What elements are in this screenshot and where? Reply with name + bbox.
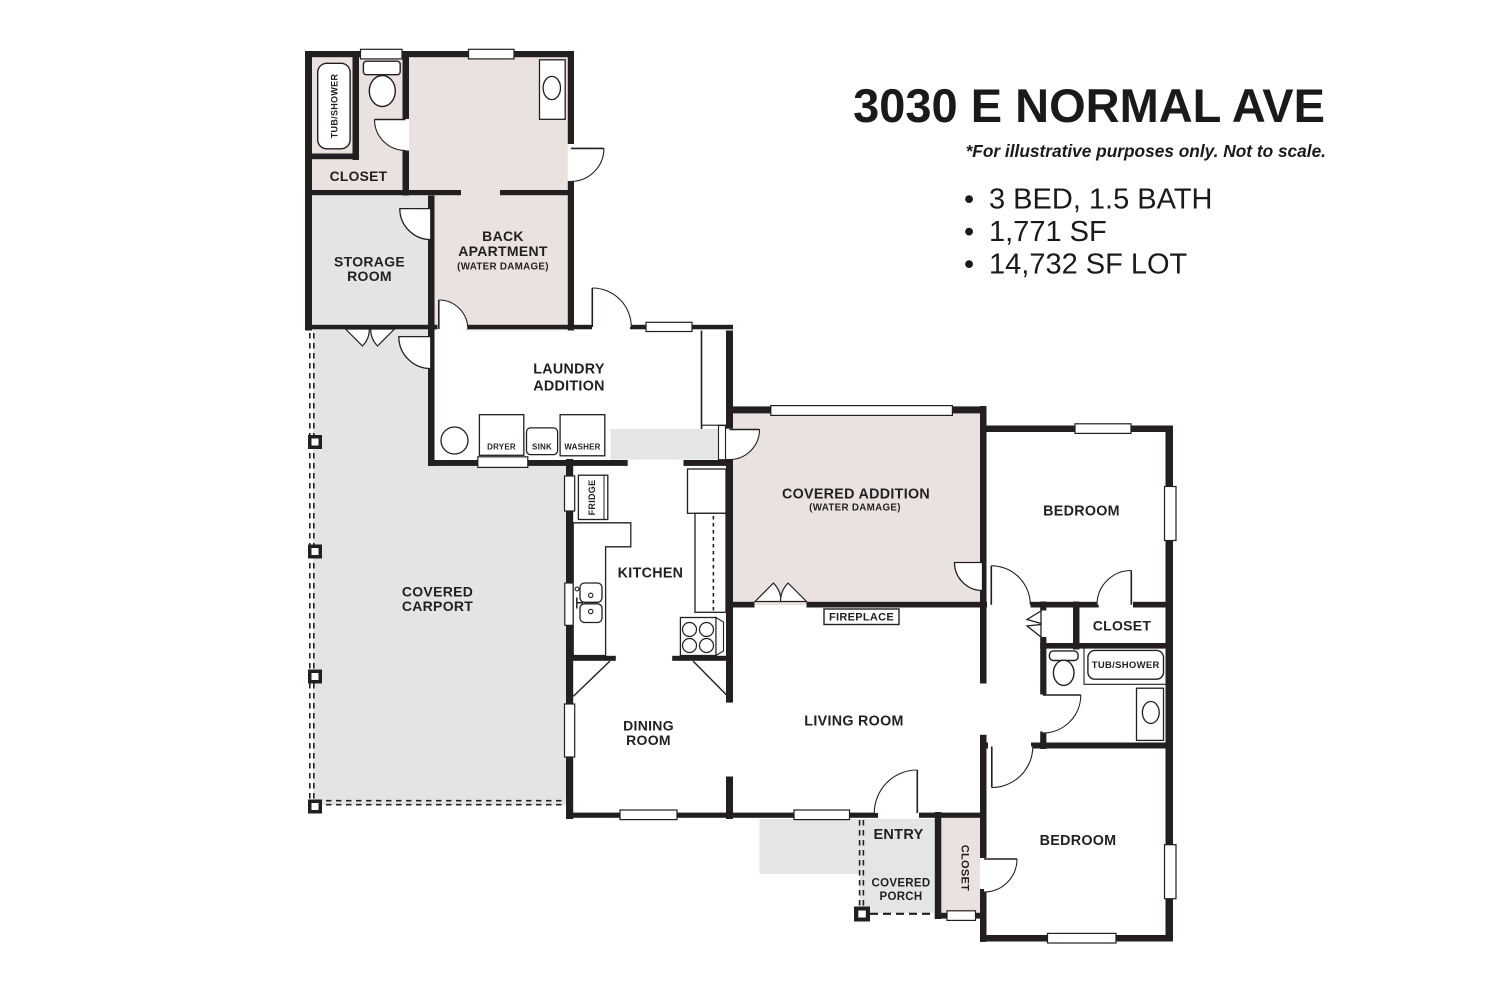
svg-text:•: • [964, 184, 974, 216]
svg-text:SINK: SINK [532, 443, 552, 452]
svg-text:CLOSET: CLOSET [959, 845, 971, 891]
svg-text:APARTMENT: APARTMENT [458, 243, 548, 259]
svg-text:•: • [964, 216, 974, 248]
svg-text:•: • [964, 249, 974, 281]
svg-text:1,771 SF: 1,771 SF [989, 216, 1107, 248]
svg-text:TUB/SHOWER: TUB/SHOWER [1092, 660, 1160, 671]
svg-text:(WATER DAMAGE): (WATER DAMAGE) [809, 503, 901, 514]
svg-text:LAUNDRY: LAUNDRY [533, 362, 605, 378]
svg-text:COVERED ADDITION: COVERED ADDITION [782, 487, 930, 503]
svg-text:ADDITION: ADDITION [533, 379, 605, 395]
svg-text:KITCHEN: KITCHEN [618, 566, 684, 582]
svg-text:BEDROOM: BEDROOM [1043, 503, 1120, 519]
svg-text:ROOM: ROOM [626, 732, 671, 748]
svg-text:14,732 SF LOT: 14,732 SF LOT [989, 249, 1188, 281]
svg-text:TUB/SHOWER: TUB/SHOWER [330, 74, 340, 139]
svg-text:CLOSET: CLOSET [1093, 618, 1152, 634]
svg-text:FRIDGE: FRIDGE [587, 480, 597, 516]
svg-text:*For illustrative purposes onl: *For illustrative purposes only. Not to … [966, 141, 1326, 161]
svg-text:COVERED: COVERED [872, 878, 931, 890]
svg-text:DRYER: DRYER [487, 443, 516, 452]
svg-text:CARPORT: CARPORT [402, 598, 473, 614]
svg-text:ROOM: ROOM [347, 268, 392, 284]
svg-text:CLOSET: CLOSET [330, 169, 388, 184]
svg-text:LIVING ROOM: LIVING ROOM [804, 714, 903, 730]
svg-text:3030 E NORMAL AVE: 3030 E NORMAL AVE [853, 79, 1325, 132]
svg-text:3 BED, 1.5 BATH: 3 BED, 1.5 BATH [989, 184, 1213, 216]
svg-text:WASHER: WASHER [564, 443, 600, 452]
svg-text:(WATER DAMAGE): (WATER DAMAGE) [457, 262, 549, 273]
svg-text:FIREPLACE: FIREPLACE [829, 612, 894, 624]
svg-text:BEDROOM: BEDROOM [1040, 833, 1117, 849]
svg-text:PORCH: PORCH [879, 891, 922, 903]
svg-text:ENTRY: ENTRY [873, 827, 923, 843]
svg-text:BACK: BACK [482, 228, 524, 244]
